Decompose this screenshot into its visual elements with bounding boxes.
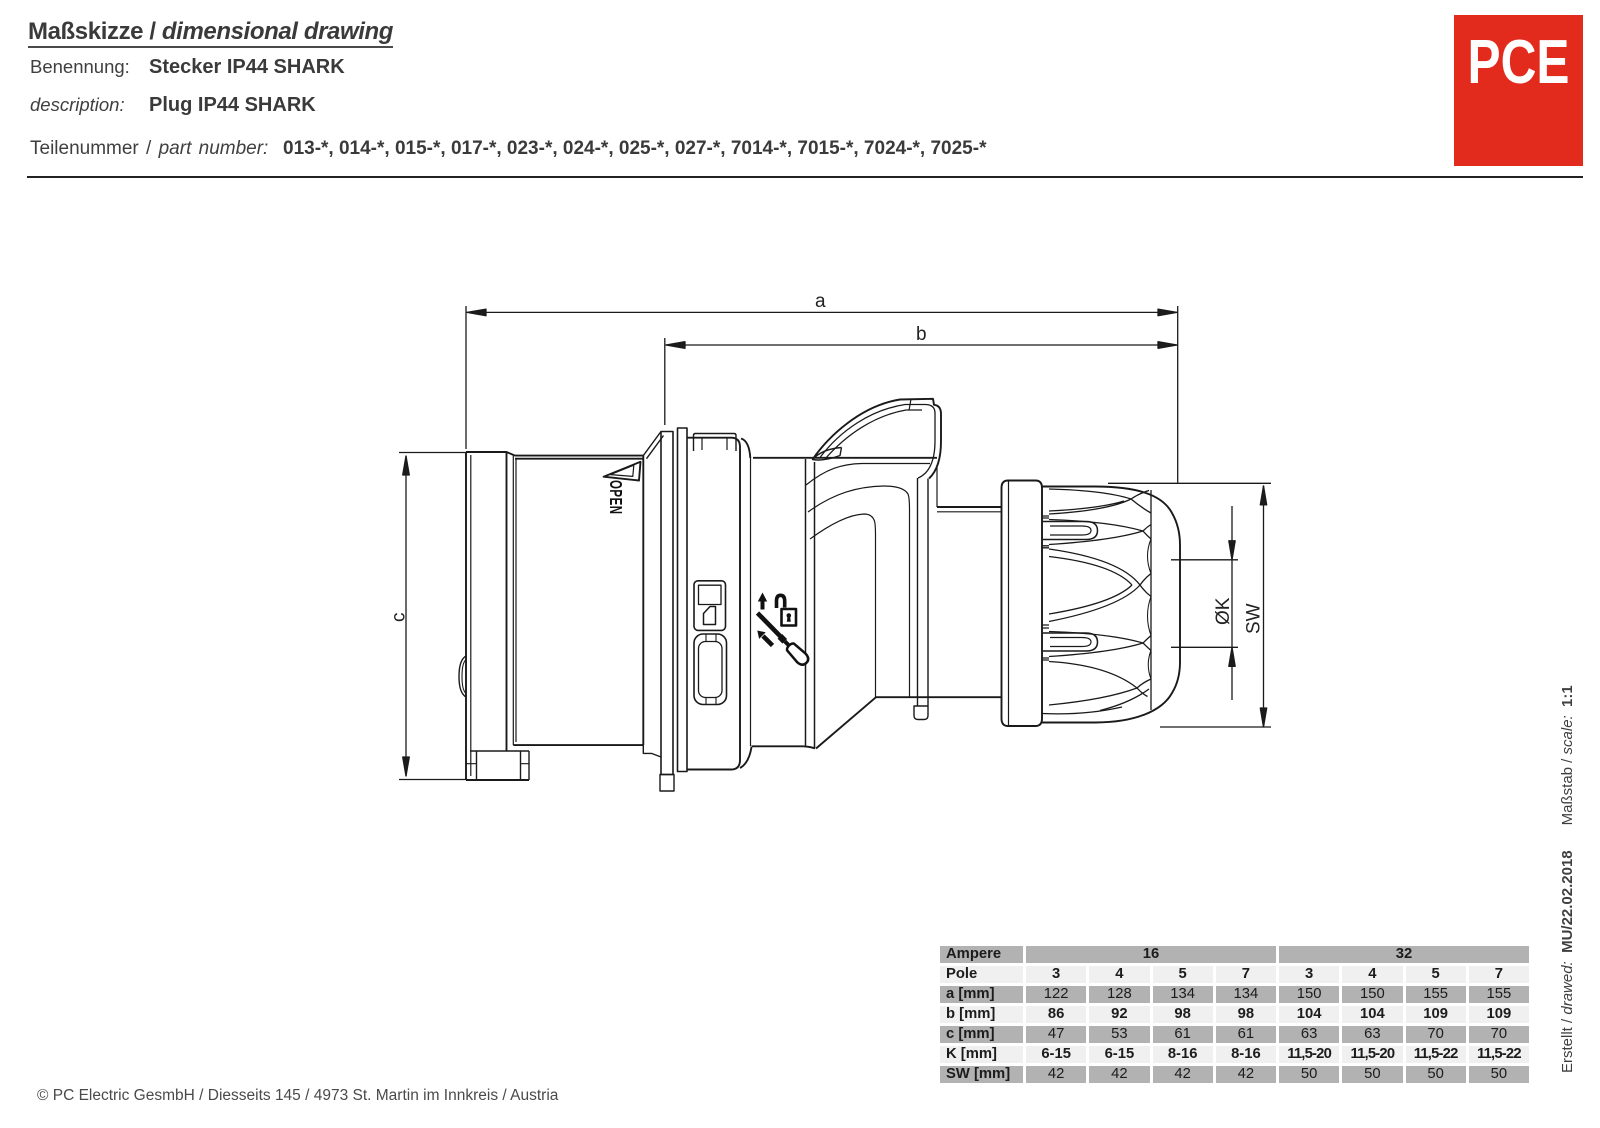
svg-text:ØK: ØK (1213, 597, 1234, 625)
svg-text:c: c (389, 613, 410, 623)
svg-text:b: b (916, 324, 927, 345)
svg-text:SW: SW (1244, 603, 1265, 634)
svg-text:a: a (815, 291, 826, 312)
svg-text:OPEN: OPEN (605, 480, 625, 515)
